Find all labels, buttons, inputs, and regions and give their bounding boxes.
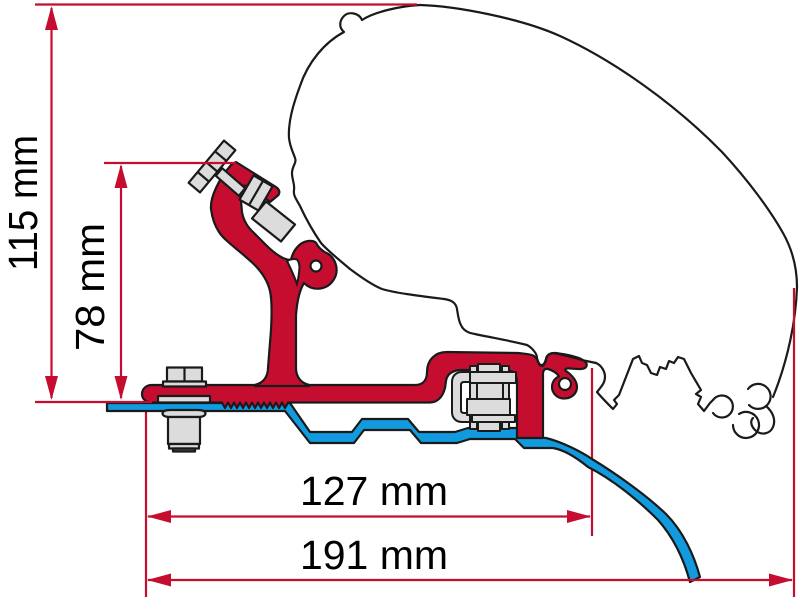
svg-text:115 mm: 115 mm [0, 135, 46, 271]
svg-text:191 mm: 191 mm [300, 532, 448, 578]
svg-text:78 mm: 78 mm [67, 223, 113, 351]
svg-text:127 mm: 127 mm [300, 468, 448, 514]
